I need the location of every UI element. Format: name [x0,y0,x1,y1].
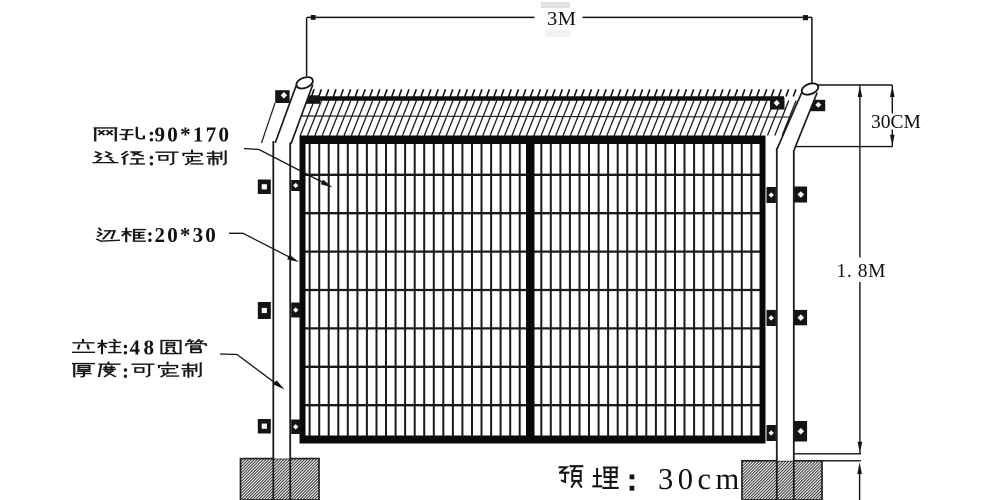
svg-text::: : [122,336,129,360]
svg-text:90*170: 90*170 [155,123,232,147]
svg-text:30cm: 30cm [658,462,744,496]
svg-text::: : [148,147,155,171]
svg-text::: : [147,223,154,247]
svg-text:30CM: 30CM [871,112,921,133]
svg-text:3M: 3M [547,8,576,30]
svg-text::: : [122,359,129,383]
svg-text:48: 48 [130,336,158,360]
svg-text:1. 8M: 1. 8M [837,261,887,282]
svg-text:20*30: 20*30 [155,223,219,247]
